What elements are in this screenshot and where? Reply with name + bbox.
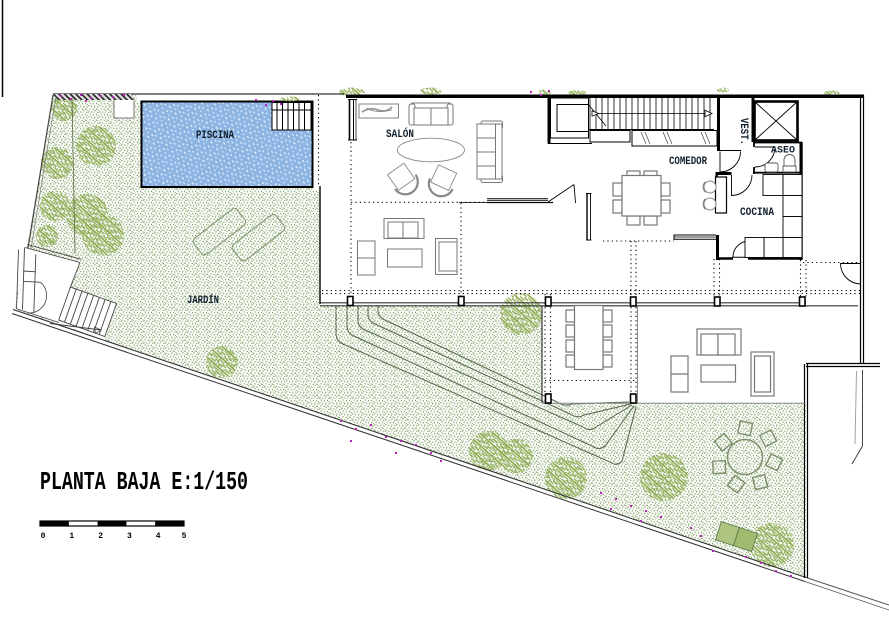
svg-text:1: 1 [69, 532, 74, 541]
svg-text:JARDÍN: JARDÍN [187, 293, 219, 307]
svg-text:PLANTA BAJA E:1/150: PLANTA BAJA E:1/150 [40, 467, 248, 497]
svg-text:PISCINA: PISCINA [196, 130, 234, 142]
svg-text:COMEDOR: COMEDOR [669, 156, 707, 168]
svg-text:VEST.: VEST. [737, 118, 749, 145]
svg-text:5: 5 [182, 532, 187, 541]
svg-text:2: 2 [98, 532, 103, 541]
svg-text:COCINA: COCINA [740, 207, 774, 219]
svg-text:3: 3 [127, 532, 132, 541]
svg-text:4: 4 [156, 532, 161, 541]
svg-text:SALÓN: SALÓN [386, 127, 414, 141]
svg-text:0: 0 [41, 532, 46, 541]
